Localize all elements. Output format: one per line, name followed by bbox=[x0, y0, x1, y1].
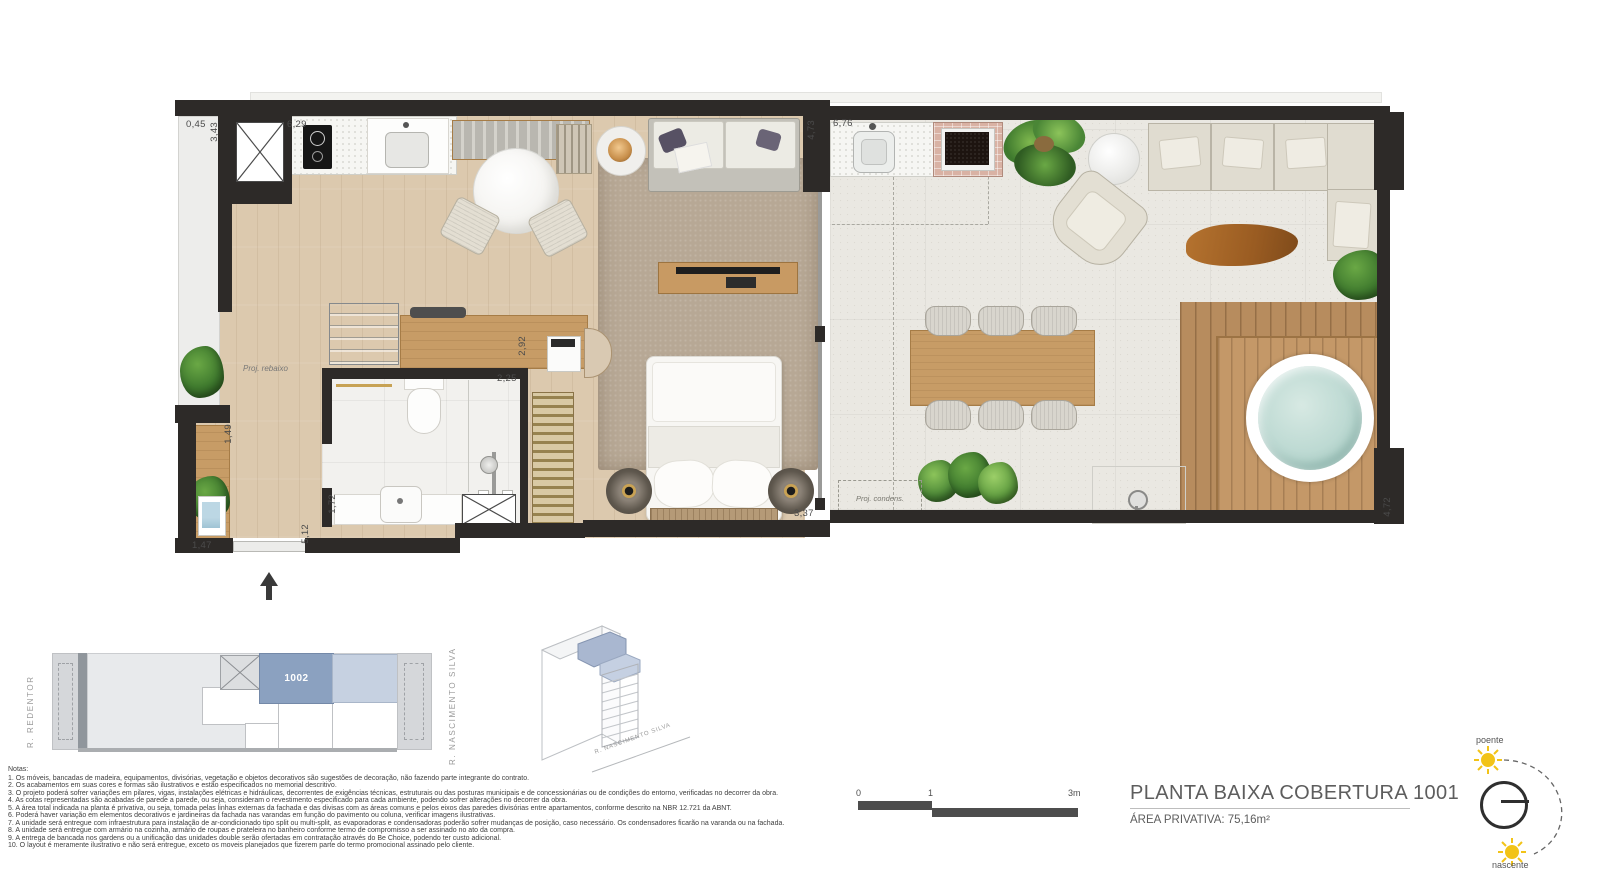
north-needle bbox=[1501, 800, 1529, 803]
media-device bbox=[726, 277, 756, 288]
outdoor-dining-chair bbox=[925, 306, 971, 336]
wall-segment bbox=[218, 200, 232, 312]
wall-segment bbox=[583, 520, 830, 537]
kitchen-sink bbox=[385, 132, 429, 168]
projection-dashed-line bbox=[832, 224, 988, 225]
sofa-pillow bbox=[1159, 136, 1202, 170]
floor-plan-sheet: Proj. condens. Proj. rebaixo bbox=[0, 0, 1600, 884]
vanity-sink bbox=[380, 486, 422, 523]
shaft bbox=[462, 494, 516, 525]
note-item: 8. A unidade será entregue com armário n… bbox=[8, 827, 1598, 835]
keyplan-unit-highlight: 1002 bbox=[259, 653, 334, 704]
north-indicator bbox=[1480, 781, 1528, 829]
scale-bar-segment bbox=[858, 801, 932, 810]
key-plan: R. REDENTOR 1002 R. NASCIMENTO SILVA bbox=[0, 630, 500, 770]
condenser-label: Proj. condens. bbox=[856, 494, 904, 503]
bathroom-wall bbox=[520, 368, 528, 527]
dimension-label: 6,76 bbox=[833, 118, 853, 129]
sectional-sofa-corner bbox=[1327, 123, 1379, 191]
title-divider bbox=[1130, 808, 1410, 809]
vanity-faucet bbox=[397, 498, 403, 504]
keyplan-endcap-dash bbox=[404, 663, 424, 740]
keyplan-shadow bbox=[78, 748, 397, 752]
dimension-label: 4,73 bbox=[806, 120, 817, 140]
dimension-label: 3,43 bbox=[209, 122, 220, 142]
note-item: 1. Os móveis, bancadas de madeira, equip… bbox=[8, 775, 1598, 783]
keyplan-lower-units bbox=[278, 702, 399, 750]
outdoor-dining-chair bbox=[978, 306, 1024, 336]
entry-arrow bbox=[258, 572, 282, 602]
toilet-bowl bbox=[407, 388, 441, 434]
jacuzzi-water bbox=[1258, 366, 1362, 470]
outdoor-sink-basin bbox=[861, 139, 887, 165]
scale-bar-segment bbox=[932, 808, 1078, 817]
serving-tray bbox=[410, 307, 466, 318]
kitchen-faucet bbox=[403, 122, 409, 128]
tv bbox=[676, 267, 780, 274]
bed-pillow bbox=[653, 458, 715, 509]
cooktop-burner bbox=[310, 131, 325, 146]
wall-segment bbox=[175, 100, 815, 116]
scale-bar: 0 1 3m bbox=[840, 780, 1100, 822]
wall-segment bbox=[178, 418, 196, 553]
table-lamp bbox=[608, 138, 632, 162]
keyplan-step bbox=[245, 723, 280, 750]
notes-heading: Notas: bbox=[8, 766, 1598, 774]
dimension-label: 1,47 bbox=[192, 540, 212, 551]
keyplan-wall-strip bbox=[78, 653, 87, 748]
keyplan-shaft bbox=[220, 655, 260, 690]
outdoor-dining-chair bbox=[978, 400, 1024, 430]
wall-segment bbox=[830, 510, 1390, 523]
framed-picture-art bbox=[202, 502, 220, 528]
shower-head bbox=[480, 456, 498, 474]
door-mullion bbox=[815, 498, 825, 510]
sofa-pillow bbox=[1285, 137, 1327, 170]
note-item: 7. A unidade será entregue com infraestr… bbox=[8, 820, 1598, 828]
outdoor-dining-chair bbox=[925, 400, 971, 430]
outdoor-faucet bbox=[869, 123, 876, 130]
dimension-label: 2,92 bbox=[517, 336, 528, 356]
dimension-label: 3,37 bbox=[794, 508, 814, 519]
nightstand-lamp bbox=[622, 484, 636, 498]
note-item: 6. Poderá haver variação em elementos de… bbox=[8, 812, 1598, 820]
compass-east-label: nascente bbox=[1492, 860, 1529, 870]
scale-tick: 0 bbox=[856, 788, 861, 798]
plan-title: PLANTA BAIXA COBERTURA 1001 bbox=[1130, 782, 1459, 805]
sofa-pillow bbox=[1222, 136, 1264, 169]
bed-pillow bbox=[711, 458, 773, 509]
wall-segment bbox=[305, 538, 460, 553]
bed-duvet bbox=[652, 362, 776, 422]
keyplan-endcap-dash bbox=[58, 663, 73, 740]
towel-bar bbox=[336, 384, 392, 387]
grill-grate bbox=[945, 132, 989, 165]
bathroom-wall bbox=[322, 368, 332, 444]
rebaixo-label: Proj. rebaixo bbox=[243, 364, 288, 373]
projection-dashed-line bbox=[893, 122, 894, 510]
ledge-plant bbox=[180, 346, 224, 398]
dimension-label: 1,72 bbox=[327, 494, 338, 514]
dishwasher bbox=[329, 303, 399, 365]
street-label-left: R. REDENTOR bbox=[26, 648, 35, 748]
dimension-label: 6,29 bbox=[287, 119, 307, 130]
outdoor-dining-chair bbox=[1031, 306, 1077, 336]
outdoor-dining-table bbox=[910, 330, 1095, 406]
elevator-shaft bbox=[236, 122, 284, 182]
street-label-right: R. NASCIMENTO SILVA bbox=[448, 640, 457, 765]
keyplan-unit-label: 1002 bbox=[284, 673, 308, 684]
entry-threshold bbox=[233, 541, 307, 552]
compass-west-label: poente bbox=[1476, 735, 1504, 745]
dimension-label: 0,45 bbox=[186, 119, 206, 130]
laptop-screen bbox=[551, 339, 575, 347]
scale-tick: 3m bbox=[1068, 788, 1081, 798]
dimension-label: 2,25 bbox=[497, 373, 517, 384]
sofa-pillow bbox=[1332, 201, 1371, 249]
glass-door bbox=[818, 192, 822, 510]
keyplan-unit-divider bbox=[332, 702, 333, 748]
note-item: 9. A entrega de bancada nos gardens ou a… bbox=[8, 835, 1598, 843]
nightstand-lamp bbox=[784, 484, 798, 498]
keyplan-unit-secondary bbox=[332, 654, 398, 703]
dimension-label: 5,12 bbox=[300, 524, 311, 544]
note-item: 10. O layout é meramente ilustrativo e n… bbox=[8, 842, 1598, 850]
iso-key-plan: R. NASCIMENTO SILVA bbox=[522, 612, 692, 777]
dimension-label: 4,72 bbox=[1382, 497, 1393, 517]
shower-divider bbox=[468, 380, 469, 492]
dimension-label: 1,49 bbox=[223, 424, 234, 444]
wall-segment bbox=[815, 106, 1390, 120]
shrubs bbox=[918, 452, 1018, 512]
door-mullion bbox=[815, 326, 825, 342]
cooktop-burner bbox=[312, 151, 323, 162]
outdoor-dining-chair bbox=[1031, 400, 1077, 430]
wardrobe bbox=[532, 392, 574, 526]
outdoor-shower bbox=[1128, 490, 1148, 510]
scale-tick: 1 bbox=[928, 788, 933, 798]
compass: poente nascente bbox=[1430, 710, 1600, 880]
private-area-label: ÁREA PRIVATIVA: 75,16m² bbox=[1130, 814, 1270, 826]
floor-plan: Proj. condens. Proj. rebaixo bbox=[0, 0, 1600, 640]
bookshelf bbox=[556, 124, 592, 174]
